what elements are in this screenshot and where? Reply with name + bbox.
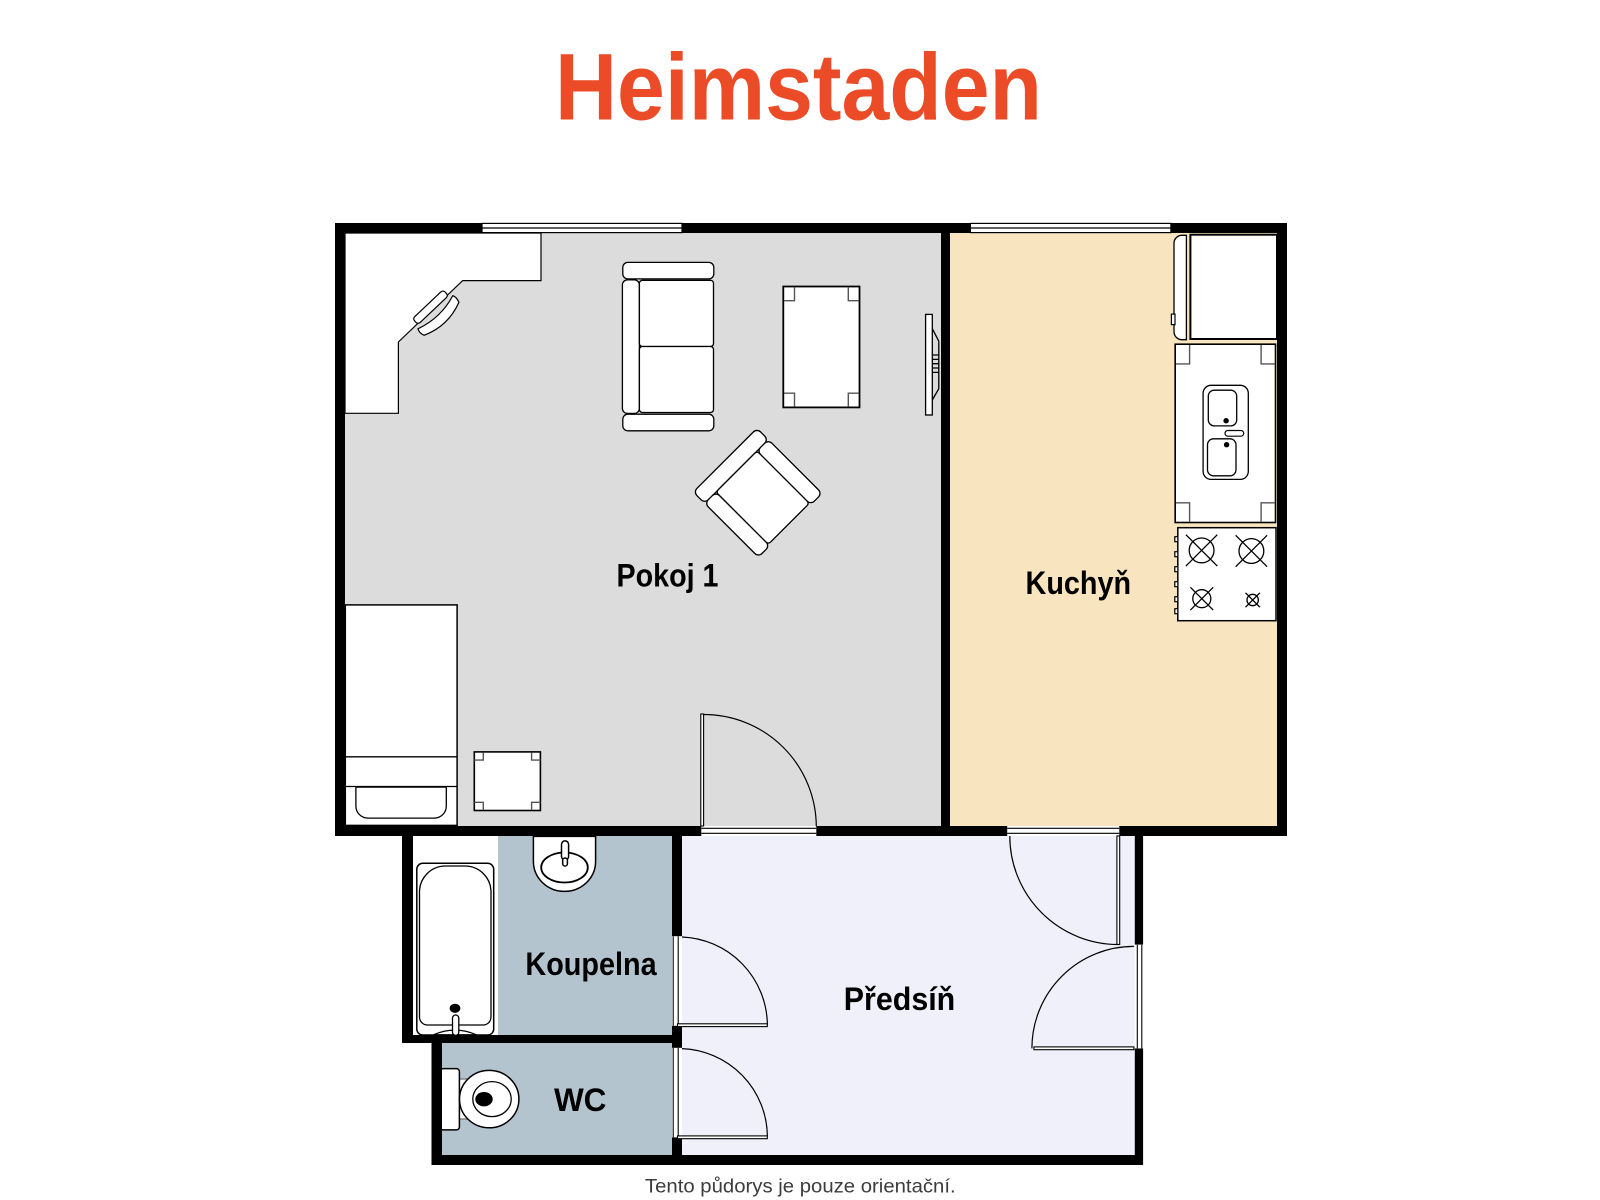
svg-text:Pokoj 1: Pokoj 1 bbox=[617, 558, 719, 594]
svg-text:Tento půdorys je pouze orienta: Tento půdorys je pouze orientační. bbox=[645, 1176, 956, 1198]
svg-text:WC: WC bbox=[554, 1082, 607, 1118]
svg-text:Koupelna: Koupelna bbox=[525, 946, 656, 982]
svg-text:Heimstaden: Heimstaden bbox=[555, 34, 1042, 140]
svg-text:Kuchyň: Kuchyň bbox=[1026, 565, 1132, 601]
svg-text:Předsíň: Předsíň bbox=[844, 981, 956, 1017]
